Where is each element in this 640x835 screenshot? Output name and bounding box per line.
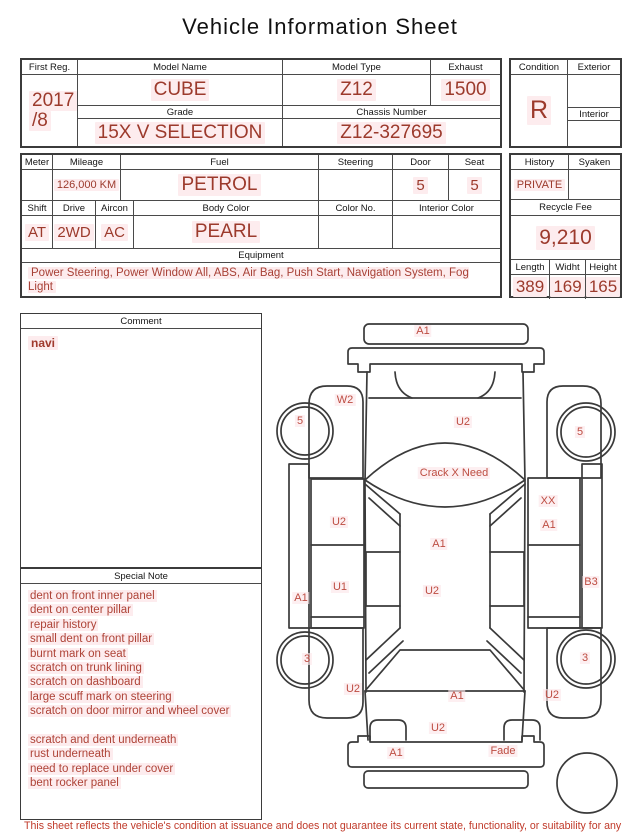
vehicle-information-sheet: Vehicle Information Sheet First Reg. Mod… (0, 0, 640, 835)
height-value: 165 (585, 274, 620, 299)
shift-label: Shift (22, 201, 52, 215)
note-line: bent rocker panel (28, 776, 254, 790)
diagram-damage-label: 3 (580, 652, 590, 664)
door-value: 5 (392, 169, 448, 200)
aircon-value: AC (95, 215, 133, 248)
interior-color-value (392, 215, 500, 248)
comment-box: Comment navi (20, 313, 262, 568)
special-note-list: dent on front inner panel dent on center… (21, 584, 261, 796)
note-line: scratch on trunk lining (28, 661, 254, 675)
condition-label: Condition (511, 60, 567, 74)
diagram-damage-label: 5 (295, 415, 305, 427)
note-line: rust underneath (28, 747, 254, 761)
left-window-inset (366, 552, 400, 606)
model-type-label: Model Type (282, 60, 430, 74)
chassis-number-label: Chassis Number (282, 105, 500, 118)
front-top-strip (364, 324, 528, 344)
note-line: dent on front inner panel (28, 589, 254, 603)
diagram-damage-label: U2 (454, 416, 472, 428)
body-right-edge (523, 372, 525, 692)
note-line: scratch on door mirror and wheel cover (28, 704, 254, 718)
meter-value (22, 169, 52, 200)
width-value: 169 (549, 274, 585, 299)
condition-value: R (511, 74, 567, 146)
comment-text: navi (28, 336, 58, 350)
exhaust-value: 1500 (430, 74, 500, 105)
exterior-value (567, 74, 620, 107)
comment-label: Comment (21, 314, 261, 329)
body-color-label: Body Color (133, 201, 318, 215)
first-reg-value: 2017 /8 (22, 74, 77, 146)
equipment-value: Power Steering, Power Window All, ABS, A… (22, 262, 500, 299)
wheel-front-right (557, 403, 615, 461)
syaken-value (568, 169, 620, 199)
diagram-damage-label: B3 (582, 576, 599, 588)
fender-rear-right (547, 628, 601, 718)
recycle-fee-value: 9,210 (511, 215, 620, 259)
body-color-value: PEARL (133, 215, 318, 248)
mileage-label: Mileage (52, 155, 120, 169)
diagram-damage-label: 5 (575, 426, 585, 438)
wheel-front-left (277, 403, 333, 459)
drive-label: Drive (52, 201, 95, 215)
seat-label: Seat (448, 155, 500, 169)
diagram-damage-label: Fade (488, 745, 517, 757)
model-name-label: Model Name (77, 60, 282, 74)
color-no-value (318, 215, 392, 248)
right-window-inset (490, 552, 524, 606)
note-line: large scuff mark on steering (28, 690, 254, 704)
shift-value: AT (22, 215, 52, 248)
color-no-label: Color No. (318, 201, 392, 215)
car-diagram-svg (270, 310, 640, 820)
exhaust-label: Exhaust (430, 60, 500, 74)
note-line: scratch and dent underneath (28, 733, 254, 747)
grade-label: Grade (77, 105, 282, 118)
recycle-fee-label: Recycle Fee (511, 200, 620, 215)
diagram-damage-label: U2 (543, 689, 561, 701)
chassis-number-value: Z12-327695 (282, 118, 500, 146)
model-type-value: Z12 (282, 74, 430, 105)
spec-table: Meter Mileage Fuel Steering Door Seat 12… (20, 153, 502, 298)
note-line: repair history (28, 618, 254, 632)
length-value: 389 (511, 274, 549, 299)
mileage-value: 126,000 KM (52, 169, 120, 200)
diagram-damage-label: W2 (335, 394, 356, 406)
footer-disclaimer: This sheet reflects the vehicle's condit… (24, 820, 634, 835)
diagram-damage-label: U2 (330, 516, 348, 528)
note-line (28, 719, 254, 733)
history-label: History (511, 155, 568, 169)
body-left-edge (365, 372, 367, 692)
diagram-damage-label: U2 (429, 722, 447, 734)
fender-rear-left (309, 628, 363, 718)
spare-tire (557, 753, 617, 813)
history-table: History Syaken PRIVATE Recycle Fee 9,210… (509, 153, 622, 298)
diagram-damage-label: U1 (331, 581, 349, 593)
steering-label: Steering (318, 155, 392, 169)
exterior-label: Exterior (567, 60, 620, 74)
special-note-box: Special Note dent on front inner panel d… (20, 568, 262, 820)
note-line: dent on center pillar (28, 603, 254, 617)
steering-value (318, 169, 392, 200)
interior-value (567, 120, 620, 146)
diagram-damage-label: U2 (423, 585, 441, 597)
right-arch (478, 372, 495, 398)
left-arch (395, 372, 412, 398)
history-value: PRIVATE (511, 169, 568, 199)
seat-value: 5 (448, 169, 500, 200)
note-line: scratch on dashboard (28, 675, 254, 689)
right-rocker (582, 464, 602, 628)
diagram-damage-label: 3 (302, 653, 312, 665)
condition-table: Condition Exterior R Interior (509, 58, 622, 148)
length-label: Length (511, 260, 549, 274)
model-name-value: CUBE (77, 74, 282, 105)
diagram-damage-label: U2 (344, 683, 362, 695)
diagram-damage-label: A1 (292, 592, 309, 604)
grade-value: 15X V SELECTION (77, 118, 282, 146)
left-doors (311, 479, 364, 628)
car-diagram: A1W255U2Crack X NeedU2XXA1A1U1U2A1B333U2… (270, 310, 640, 820)
diagram-damage-label: A1 (448, 690, 465, 702)
registration-table: First Reg. Model Name Model Type Exhaust… (20, 58, 502, 148)
fuel-label: Fuel (120, 155, 318, 169)
diagram-damage-label: A1 (414, 325, 431, 337)
diagram-damage-label: A1 (387, 747, 404, 759)
page-title: Vehicle Information Sheet (0, 14, 640, 40)
diagram-damage-label: Crack X Need (418, 467, 490, 479)
front-bumper (348, 348, 544, 372)
left-taillight (370, 720, 406, 740)
note-line: burnt mark on seat (28, 647, 254, 661)
diagram-damage-label: A1 (430, 538, 447, 550)
special-note-label: Special Note (21, 569, 261, 584)
first-reg-label: First Reg. (22, 60, 77, 74)
diagram-damage-label: A1 (540, 519, 557, 531)
height-label: Height (585, 260, 620, 274)
interior-label: Interior (567, 107, 620, 120)
diagram-damage-label: XX (539, 495, 558, 507)
syaken-label: Syaken (568, 155, 620, 169)
note-line: small dent on front pillar (28, 632, 254, 646)
rear-bottom-strip (364, 771, 528, 788)
drive-value: 2WD (52, 215, 95, 248)
meter-label: Meter (22, 155, 52, 169)
note-line: need to replace under cover (28, 762, 254, 776)
width-label: Widht (549, 260, 585, 274)
rear-window (365, 650, 525, 691)
door-label: Door (392, 155, 448, 169)
equipment-label: Equipment (22, 249, 500, 262)
aircon-label: Aircon (95, 201, 133, 215)
fuel-value: PETROL (120, 169, 318, 200)
interior-color-label: Interior Color (392, 201, 500, 215)
